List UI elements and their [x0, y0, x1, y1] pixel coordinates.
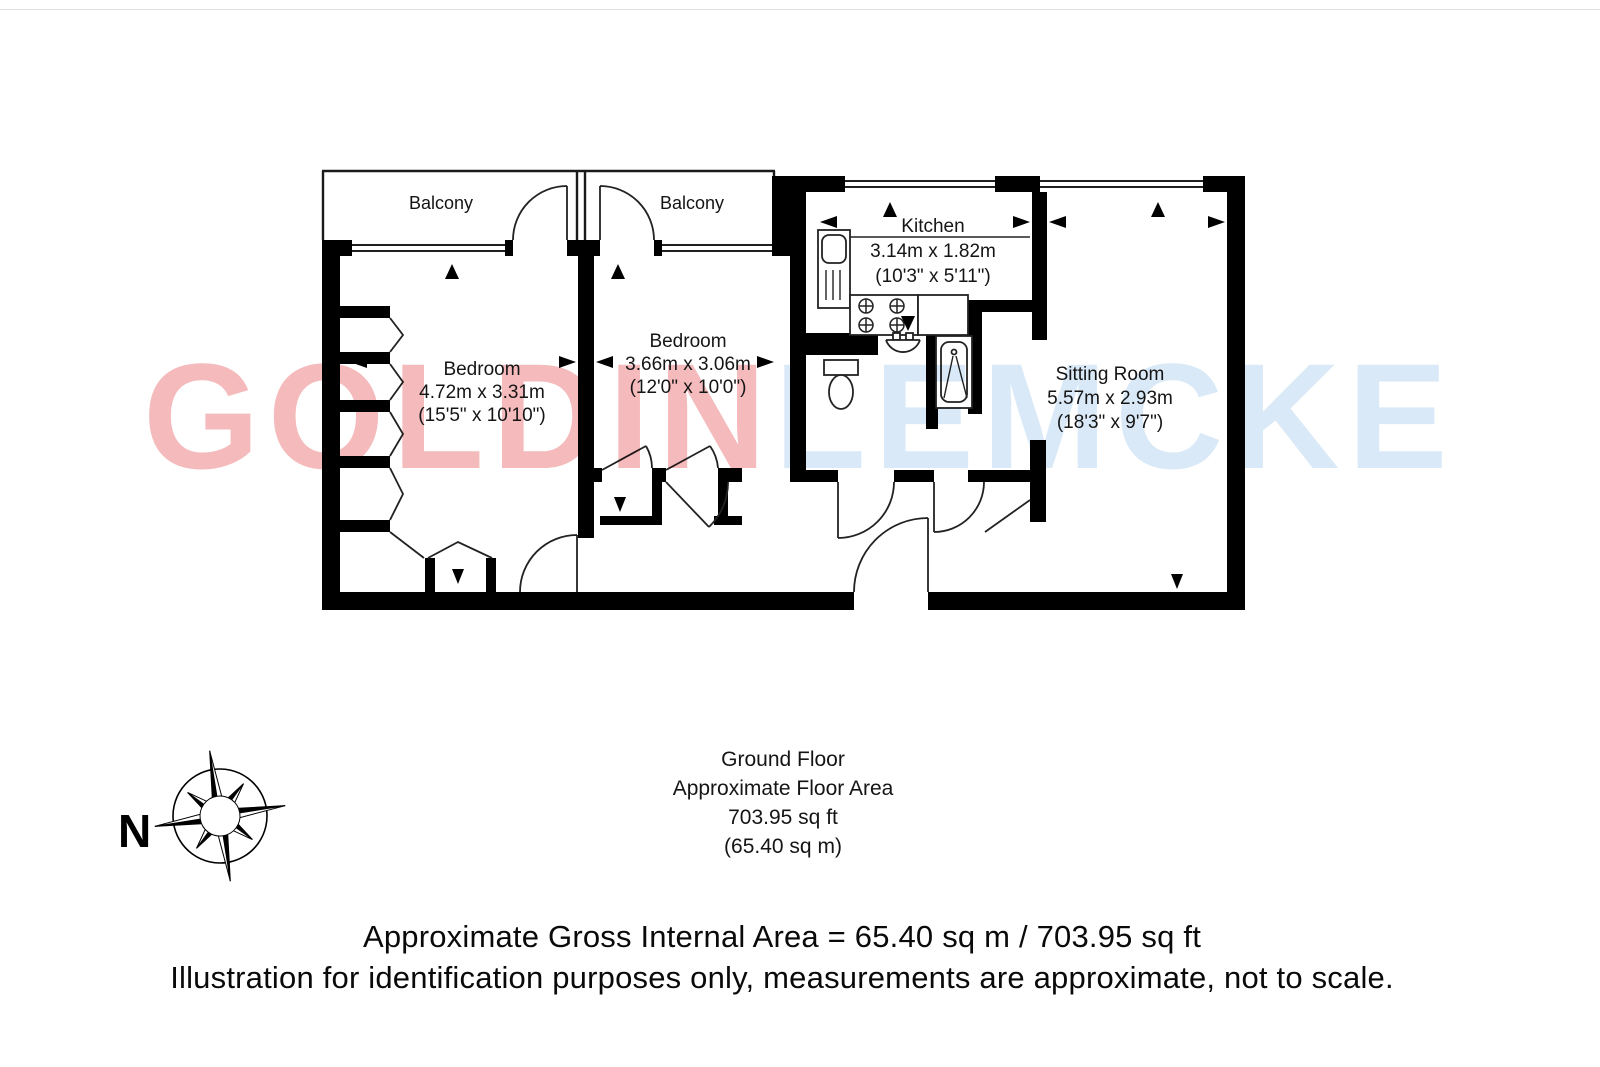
floor-plan-svg	[0, 0, 1600, 1067]
sitting-room-imperial: (18'3" x 9'7")	[1047, 411, 1173, 435]
balcony2-label: Balcony	[660, 193, 724, 213]
sitting-room-label: Sitting Room 5.57m x 2.93m (18'3" x 9'7"…	[1047, 363, 1173, 435]
footer-disclaimer: Approximate Gross Internal Area = 65.40 …	[170, 916, 1394, 998]
kitchen-label: Kitchen 3.14m x 1.82m (10'3" x 5'11")	[870, 214, 996, 289]
floor-summary-line4: (65.40 sq m)	[673, 832, 894, 861]
kitchen-name: Kitchen	[870, 214, 996, 239]
footer-line1: Approximate Gross Internal Area = 65.40 …	[170, 916, 1394, 957]
floor-summary-line3: 703.95 sq ft	[673, 803, 894, 832]
floor-summary-line2: Approximate Floor Area	[673, 774, 894, 803]
kitchen-imperial: (10'3" x 5'11")	[870, 264, 996, 289]
hob-icon	[850, 295, 968, 335]
kitchen-metric: 3.14m x 1.82m	[870, 239, 996, 264]
watermark: GOLDINLEMCKE	[143, 336, 1456, 496]
sitting-room-metric: 5.57m x 2.93m	[1047, 387, 1173, 411]
floor-summary-line1: Ground Floor	[673, 745, 894, 774]
bedroom1-label: Bedroom 4.72m x 3.31m (15'5" x 10'10")	[418, 358, 545, 427]
bedroom1-metric: 4.72m x 3.31m	[418, 381, 545, 404]
bedroom2-imperial: (12'0" x 10'0")	[625, 376, 751, 399]
compass-rose-icon	[144, 740, 295, 891]
north-label: N	[118, 804, 151, 858]
bedroom1-name: Bedroom	[418, 358, 545, 381]
kitchen-sink-icon	[818, 230, 850, 308]
bedroom2-label: Bedroom 3.66m x 3.06m (12'0" x 10'0")	[625, 330, 751, 399]
bedroom1-imperial: (15'5" x 10'10")	[418, 404, 545, 427]
floorplan-page: GOLDINLEMCKE Balcony Balcony Bedroom 4.7…	[0, 0, 1600, 1067]
bedroom2-metric: 3.66m x 3.06m	[625, 353, 751, 376]
balcony1-label: Balcony	[409, 193, 473, 213]
footer-line2: Illustration for identification purposes…	[170, 957, 1394, 998]
bedroom2-name: Bedroom	[625, 330, 751, 353]
sitting-room-name: Sitting Room	[1047, 363, 1173, 387]
floor-summary: Ground Floor Approximate Floor Area 703.…	[673, 745, 894, 861]
